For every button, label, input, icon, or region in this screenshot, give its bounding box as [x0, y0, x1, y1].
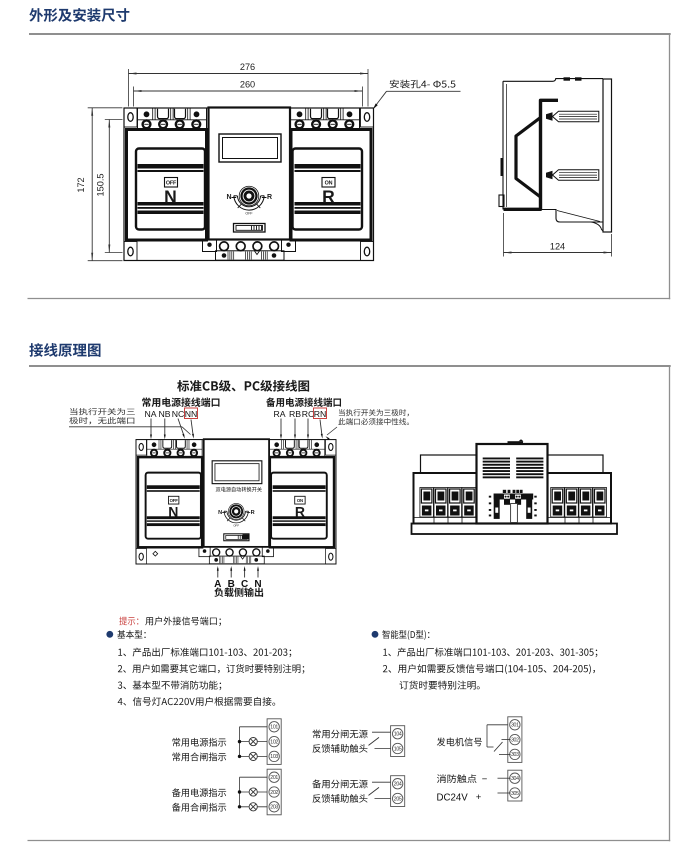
svg-text:C: C — [241, 579, 248, 590]
svg-text:276: 276 — [240, 62, 255, 72]
svg-text:102: 102 — [270, 739, 278, 745]
svg-text:NN: NN — [185, 409, 198, 419]
svg-text:NB: NB — [158, 409, 170, 419]
svg-text:NC: NC — [172, 409, 185, 419]
svg-text:301: 301 — [511, 723, 519, 729]
svg-text:201: 201 — [270, 775, 278, 781]
svg-text:N: N — [164, 187, 177, 207]
svg-text:303: 303 — [511, 752, 519, 758]
svg-text:103: 103 — [270, 754, 278, 760]
svg-text:R: R — [322, 187, 335, 207]
svg-text:RC: RC — [302, 409, 315, 419]
svg-text:172: 172 — [76, 177, 86, 192]
svg-text:203: 203 — [270, 805, 278, 811]
svg-text:302: 302 — [511, 737, 519, 743]
svg-text:304: 304 — [511, 776, 519, 782]
svg-text:N: N — [254, 579, 261, 590]
svg-text:260: 260 — [240, 80, 255, 90]
svg-text:+: + — [476, 792, 482, 803]
svg-text:205: 205 — [394, 796, 402, 802]
svg-text:101: 101 — [270, 725, 278, 731]
svg-text:RN: RN — [314, 409, 327, 419]
svg-text:R: R — [267, 194, 272, 201]
svg-text:N: N — [226, 194, 231, 201]
svg-text:202: 202 — [270, 790, 278, 796]
svg-text:RA: RA — [273, 409, 285, 419]
svg-text:OFF: OFF — [245, 212, 253, 216]
svg-text:104: 104 — [394, 732, 402, 738]
svg-text:204: 204 — [394, 782, 402, 788]
svg-text:150.5: 150.5 — [96, 174, 106, 197]
svg-text:124: 124 — [550, 242, 565, 252]
svg-text:NA: NA — [144, 409, 156, 419]
svg-text:RB: RB — [289, 409, 301, 419]
svg-text:305: 305 — [511, 791, 519, 797]
svg-text:DC24V: DC24V — [437, 792, 469, 803]
svg-text:105: 105 — [394, 746, 402, 752]
svg-text:−: − — [482, 774, 488, 785]
